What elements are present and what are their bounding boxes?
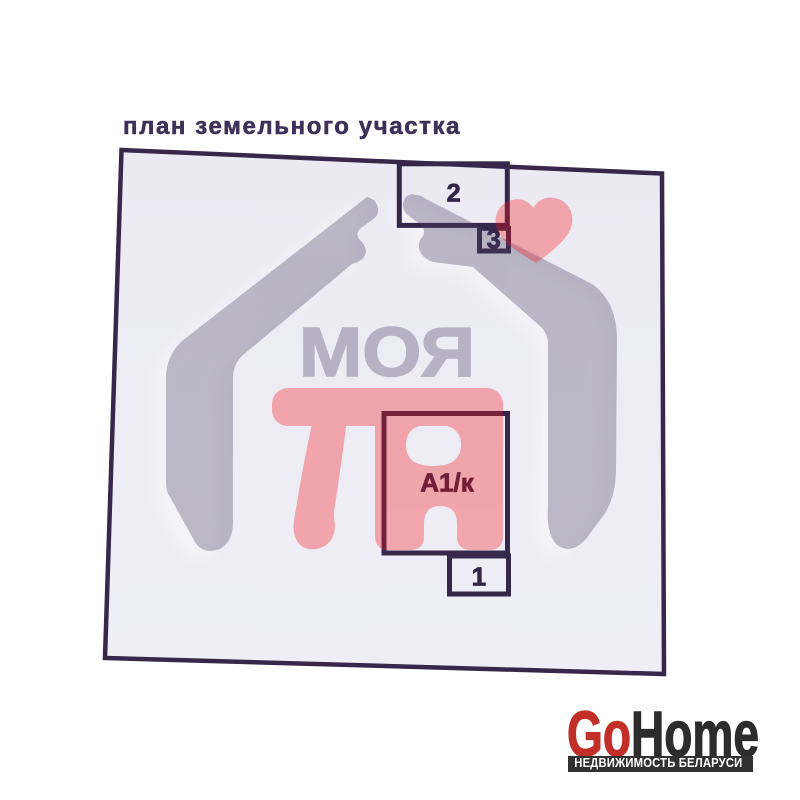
svg-text:1: 1 [472, 561, 486, 591]
svg-text:2: 2 [447, 179, 461, 207]
svg-text:МОЯ: МОЯ [299, 313, 475, 391]
